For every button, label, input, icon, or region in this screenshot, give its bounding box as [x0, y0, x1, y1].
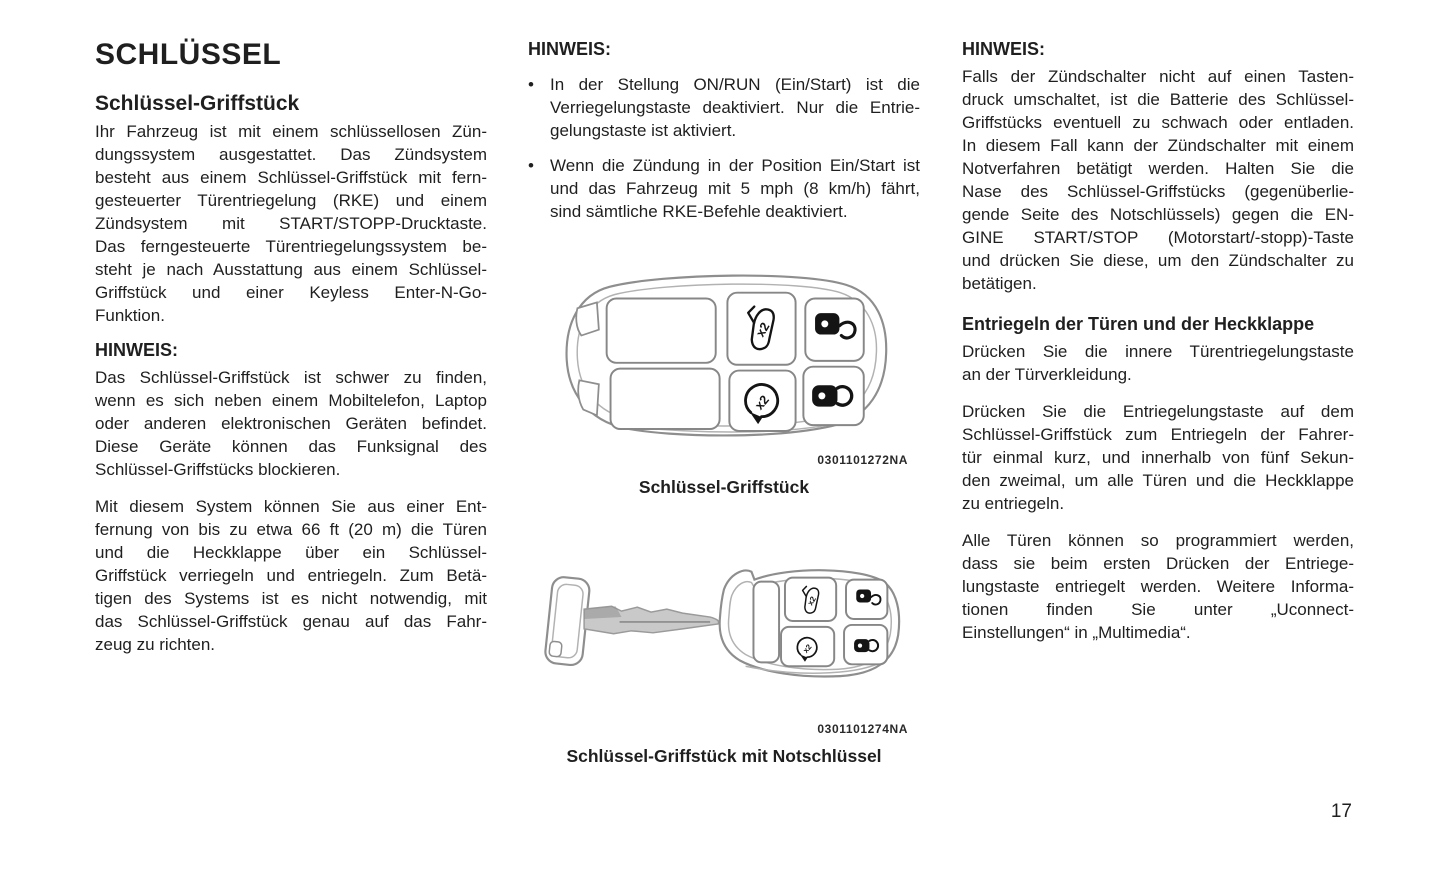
- bullet-marker: •: [528, 73, 550, 142]
- page-title: SCHLÜSSEL: [95, 38, 487, 72]
- key-fob-with-key-figure: 0301101274NA Schlüssel-Griffstück mit No…: [528, 556, 920, 767]
- paragraph-unlock-sequence: Drücken Sie die Entriegelungstaste auf d…: [962, 400, 1354, 515]
- key-fob-figure: x2 x2: [528, 263, 920, 498]
- section-heading-key-fob: Schlüssel-Griffstück: [95, 92, 487, 116]
- bullet-item: • In der Stellung ON/RUN (Ein/Start) ist…: [528, 73, 920, 142]
- note-heading: HINWEIS:: [95, 339, 487, 361]
- figure-code: 0301101274NA: [528, 722, 920, 736]
- paragraph-intro: Ihr Fahrzeug ist mit einem schlüssellose…: [95, 120, 487, 327]
- fob-buttons: [607, 293, 864, 431]
- note-heading: HINWEIS:: [528, 38, 920, 60]
- bullet-text: Wenn die Zündung in der Position Ein/Sta…: [550, 154, 920, 223]
- note-heading: HINWEIS:: [962, 38, 1354, 60]
- figure-caption: Schlüssel-Griffstück mit Notschlüssel: [528, 745, 920, 767]
- manual-page: SCHLÜSSEL Schlüssel-Griffstück Ihr Fahrz…: [0, 0, 1445, 874]
- bullet-text: In der Stellung ON/RUN (Ein/Start) ist d…: [550, 73, 920, 142]
- key-fob-illustration: x2 x2: [556, 263, 892, 447]
- figure-code: 0301101272NA: [528, 453, 920, 467]
- emergency-key: [544, 576, 718, 666]
- paragraph-battery-note: Falls der Zündschalter nicht auf einen T…: [962, 65, 1354, 295]
- section-heading-unlock-doors: Entriegeln der Türen und der Heckklappe: [962, 313, 1354, 336]
- bullet-item: • Wenn die Zündung in der Position Ein/S…: [528, 154, 920, 223]
- column-right: HINWEIS: Falls der Zündschalter nicht au…: [962, 38, 1354, 644]
- figure-caption: Schlüssel-Griffstück: [528, 476, 920, 498]
- paragraph-programming: Alle Türen können so programmiert werden…: [962, 529, 1354, 644]
- key-fob-with-emergency-key-illustration: [536, 556, 902, 684]
- column-middle: HINWEIS: • In der Stellung ON/RUN (Ein/S…: [528, 38, 920, 767]
- page-number: 17: [1262, 800, 1352, 823]
- paragraph-note: Das Schlüssel-Griffstück ist schwer zu f…: [95, 366, 487, 481]
- bullet-marker: •: [528, 154, 550, 223]
- column-left: SCHLÜSSEL Schlüssel-Griffstück Ihr Fahrz…: [95, 38, 487, 656]
- paragraph-range: Mit diesem System können Sie aus einer E…: [95, 495, 487, 656]
- paragraph-inner-button: Drücken Sie die innere Türentriegelungst…: [962, 340, 1354, 386]
